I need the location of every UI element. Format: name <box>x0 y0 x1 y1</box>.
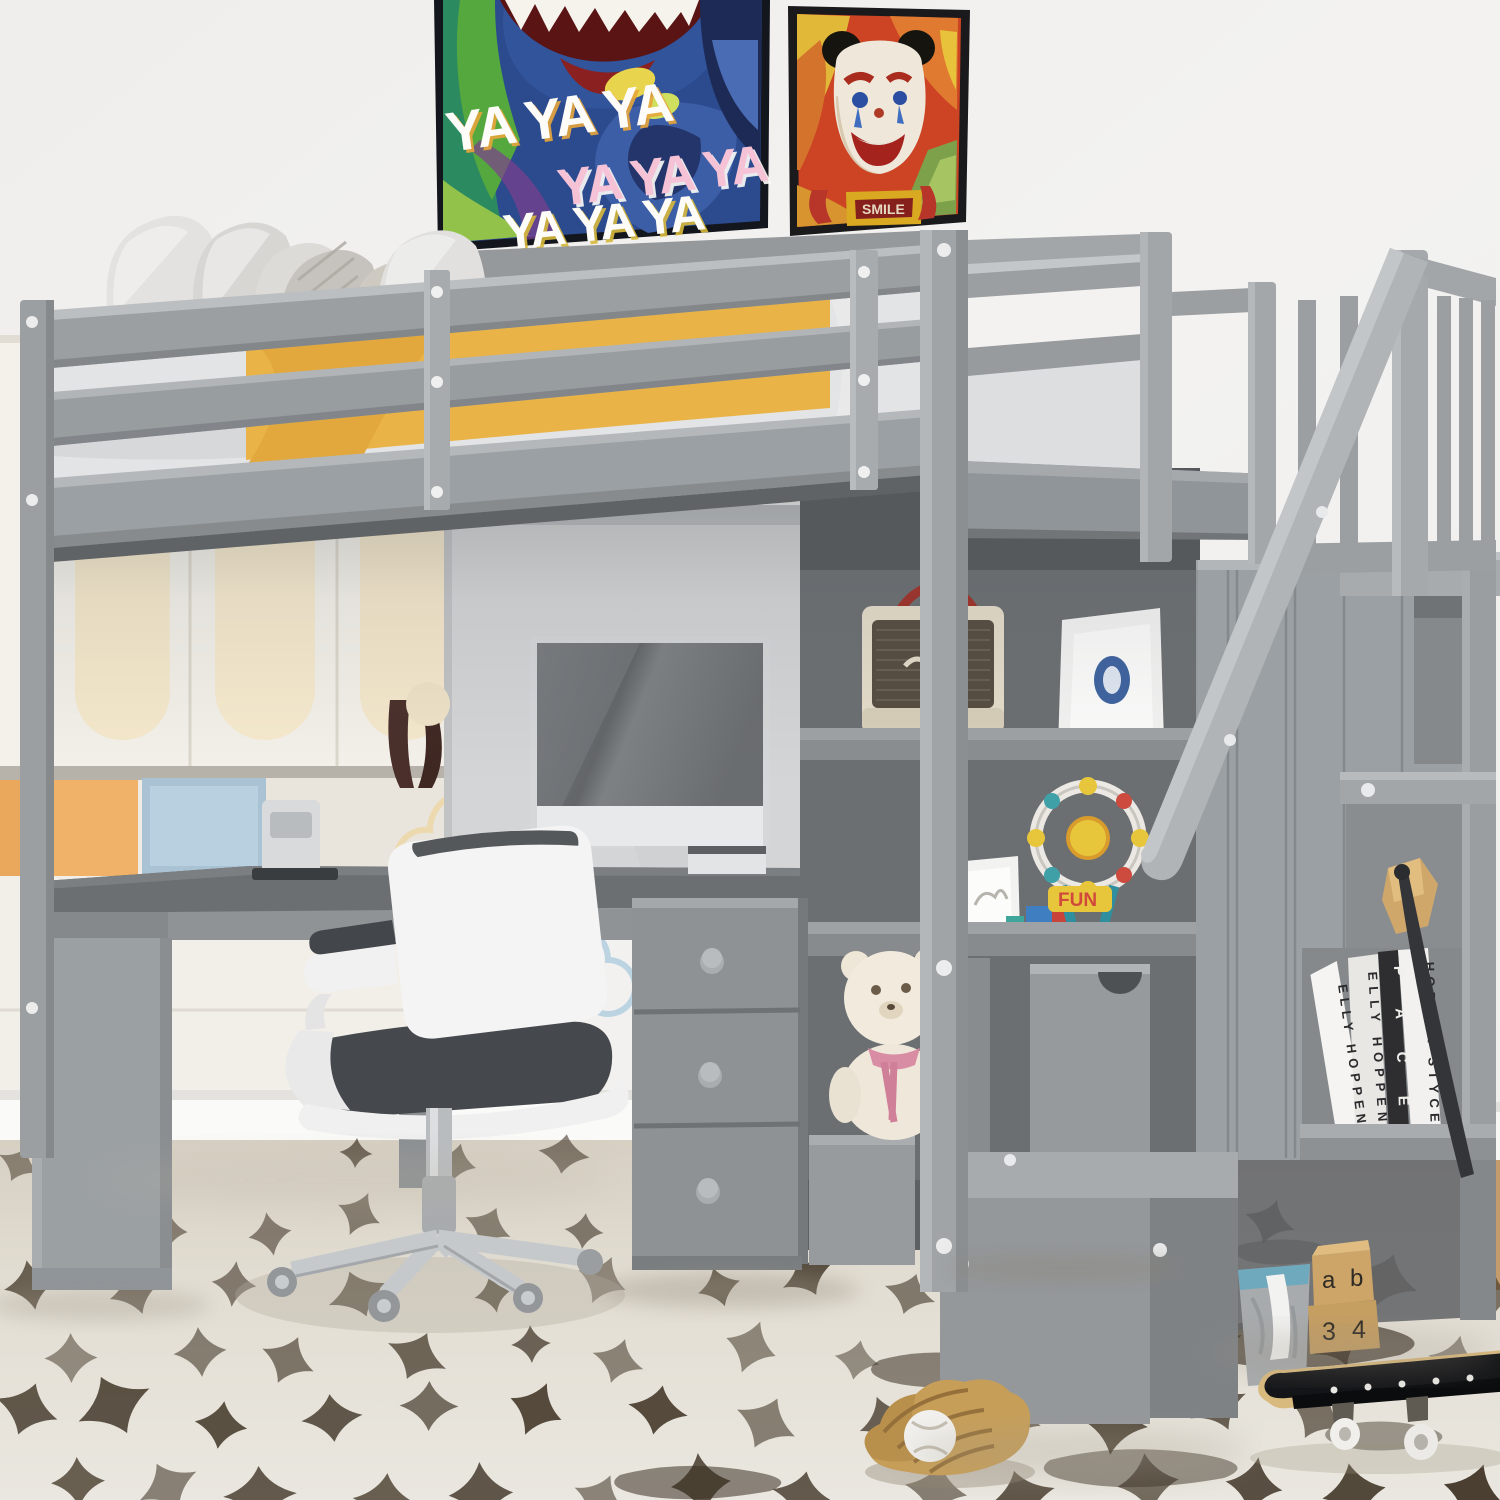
svg-text:FUN: FUN <box>1058 890 1097 911</box>
svg-text:SMILE: SMILE <box>862 201 905 217</box>
svg-text:a: a <box>1322 1267 1336 1294</box>
svg-text:b: b <box>1350 1265 1363 1292</box>
